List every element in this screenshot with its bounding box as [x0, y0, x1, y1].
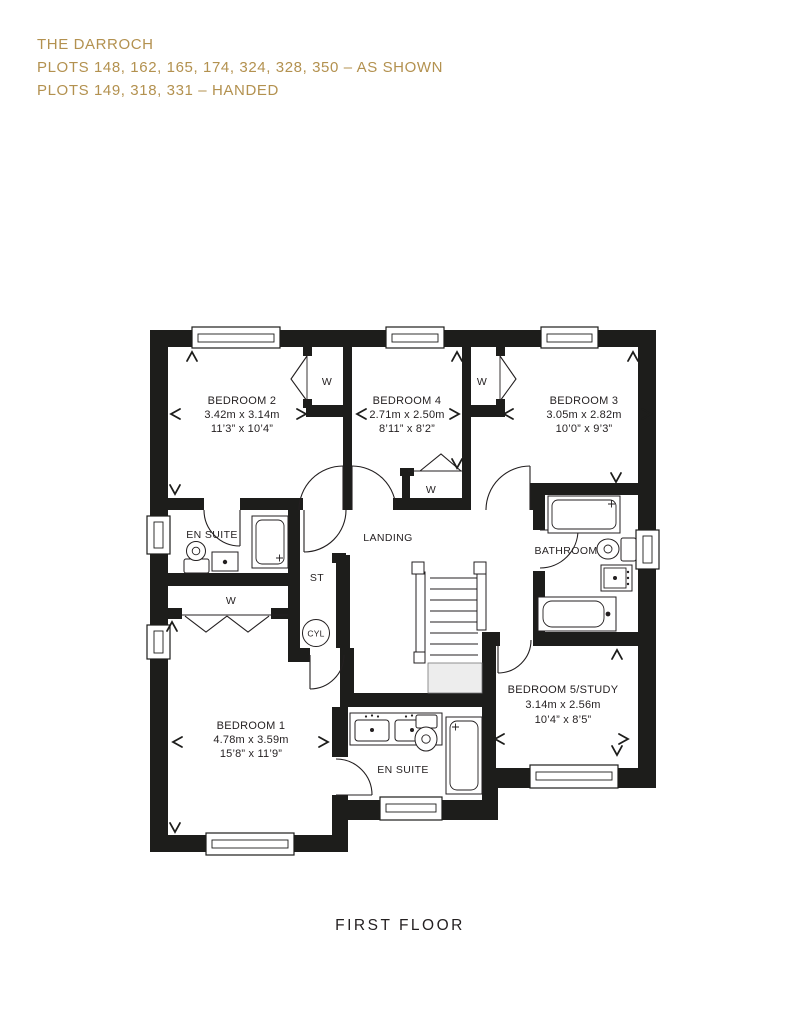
bedroom3-label: BEDROOM 3 3.05m x 2.82m 10’0” x 9’3” [546, 395, 621, 435]
floor-title: FIRST FLOOR [0, 917, 800, 935]
wardrobe-bedroom2-rail-icon [291, 351, 307, 401]
newel-post-icon [414, 652, 425, 663]
toilet-icon [621, 538, 636, 561]
window-bedroom5-icon [530, 765, 618, 788]
door-bedroom3-icon [486, 466, 530, 510]
bedroom4-metric: 2.71m x 2.50m [369, 409, 444, 421]
bedroom1-name: BEDROOM 1 [217, 720, 286, 732]
window-bathroom-icon [636, 530, 659, 569]
bedroom5-name: BEDROOM 5/STUDY [508, 684, 619, 696]
window-bedroom4-icon [386, 327, 444, 348]
newel-post-icon [474, 562, 486, 574]
bedroom3-imperial: 10’0” x 9’3” [556, 423, 613, 435]
door-store-icon [304, 510, 346, 552]
window-ensuite1-icon [147, 516, 170, 554]
ensuite2-label: EN SUITE [377, 764, 429, 776]
ensuite1-fixtures [184, 516, 288, 573]
bedroom2-label: BEDROOM 2 3.42m x 3.14m 11’3” x 10’4” [204, 395, 279, 435]
toilet-icon [416, 715, 437, 728]
window-bedroom1-bottom-icon [206, 833, 294, 855]
wardrobe-label-bedroom4: W [426, 484, 436, 496]
landing-label: LANDING [363, 532, 412, 544]
door-bedroom1-icon [310, 655, 344, 689]
stair-rail-right [477, 572, 486, 630]
shower-icon [446, 717, 482, 794]
ensuite1-label: EN SUITE [186, 529, 238, 541]
floor-plan-drawing: CYL BEDROOM 2 3.42m x 3.14m 11’3 [0, 0, 800, 1036]
bathroom-label: BATHROOM [534, 545, 597, 557]
staircase [412, 562, 486, 693]
wardrobe-label-hall: W [226, 595, 236, 607]
bedroom5-label: BEDROOM 5/STUDY 3.14m x 2.56m 10’4” x 8’… [508, 684, 619, 726]
bedroom1-imperial: 15’8” x 11’9” [220, 748, 282, 760]
stair-rail-left [416, 572, 425, 658]
newel-post-icon [412, 562, 424, 574]
shower-icon [252, 516, 288, 568]
window-bedroom3-icon [541, 327, 598, 348]
window-ensuite2-icon [380, 797, 442, 820]
bedroom3-metric: 3.05m x 2.82m [546, 409, 621, 421]
door-bedroom5-icon [498, 640, 531, 673]
bedroom4-name: BEDROOM 4 [373, 395, 442, 407]
bedroom2-imperial: 11’3” x 10’4” [211, 423, 273, 435]
bedroom1-metric: 4.78m x 3.59m [213, 734, 288, 746]
bedroom4-label: BEDROOM 4 2.71m x 2.50m 8’11” x 8’2” [369, 395, 444, 435]
bathroom-fixtures [538, 496, 636, 631]
cylinder-label: CYL [307, 629, 324, 639]
bedroom2-metric: 3.42m x 3.14m [204, 409, 279, 421]
wardrobe-label-bedroom3: W [477, 376, 487, 388]
stair-half-landing [428, 663, 482, 693]
cylinder-cupboard: CYL [303, 620, 330, 647]
wardrobe-label-bedroom2: W [322, 376, 332, 388]
door-ensuite2-icon [336, 759, 372, 795]
bedroom3-name: BEDROOM 3 [550, 395, 619, 407]
shower-icon [548, 496, 620, 533]
bedroom5-imperial: 10’4” x 8’5” [535, 714, 592, 726]
door-bedroom2-icon [299, 466, 343, 510]
door-bedroom4-icon [352, 466, 396, 510]
bedroom2-name: BEDROOM 2 [208, 395, 277, 407]
floorplan-page: THE DARROCH PLOTS 148, 162, 165, 174, 32… [0, 0, 800, 1036]
window-bedroom2-icon [192, 327, 280, 348]
bedroom4-imperial: 8’11” x 8’2” [379, 423, 435, 435]
bedroom5-metric: 3.14m x 2.56m [525, 699, 600, 711]
wardrobe-bedroom3-rail-icon [500, 351, 516, 401]
store-label: ST [310, 572, 324, 584]
bedroom1-label: BEDROOM 1 4.78m x 3.59m 15’8” x 11’9” [213, 720, 288, 760]
toilet-icon [184, 559, 209, 573]
